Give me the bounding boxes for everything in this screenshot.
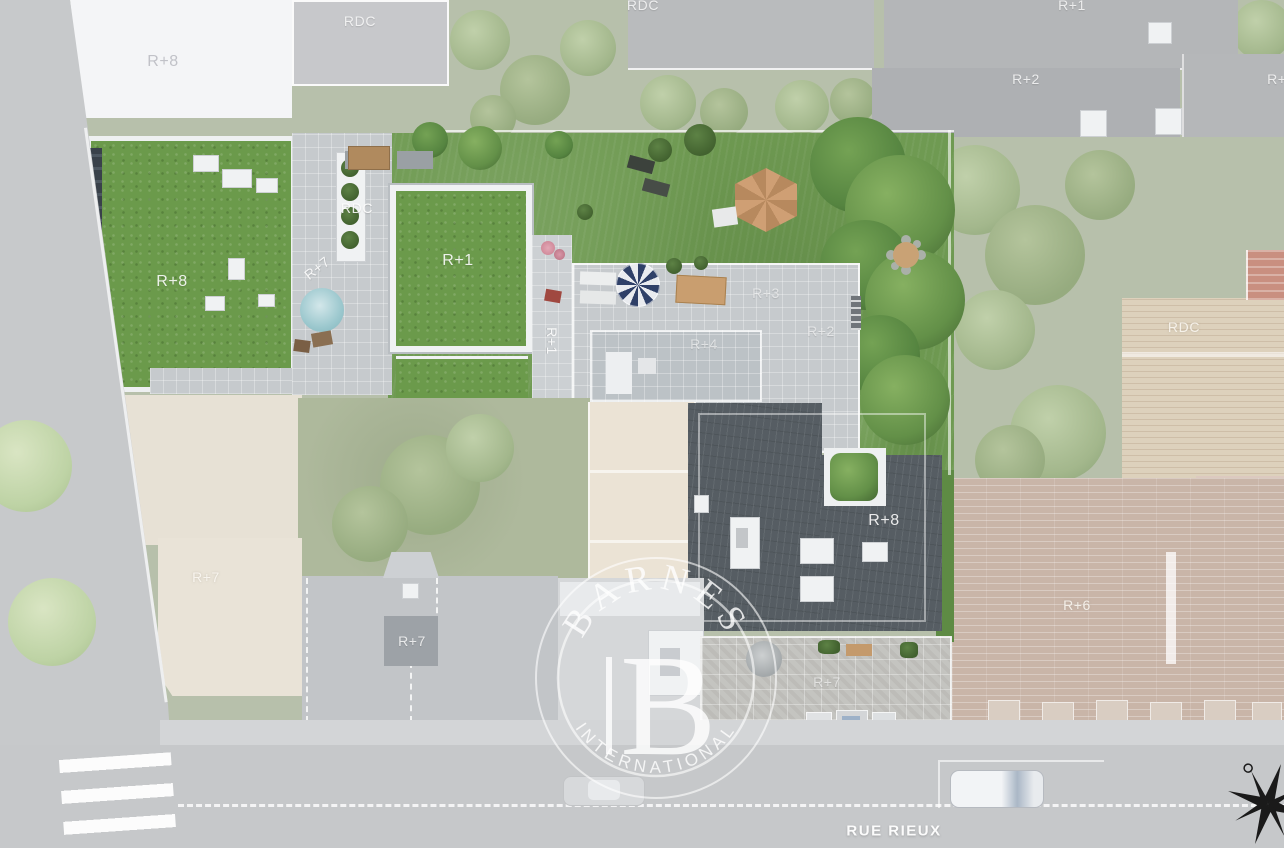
neighbor-wood-deck-rdc: [1122, 298, 1284, 480]
building-label-project-r8-dark: R+8: [868, 512, 900, 530]
neighbor-building-top-left: [70, 0, 292, 118]
roof-line: [590, 540, 690, 543]
planter: [900, 642, 918, 658]
sun-lounger: [580, 271, 616, 285]
sun-lounger: [580, 290, 616, 304]
tree: [560, 20, 616, 76]
building-label-project-rdc: RDC: [341, 200, 373, 216]
building-label-neighbor-r2: R+2: [1012, 71, 1040, 87]
barnes-watermark: BARNES B INTERNATIONAL: [520, 545, 800, 825]
outdoor-table: [348, 146, 390, 170]
roof-dashed-line: [410, 662, 412, 722]
outdoor-table: [675, 275, 726, 306]
tree: [955, 290, 1035, 370]
rooftop-skylight: [1080, 110, 1107, 137]
roof-line: [590, 470, 690, 473]
parked-car: [950, 770, 1044, 808]
rooftop-unit: [222, 169, 252, 188]
roof-furniture: [606, 352, 632, 394]
rooftop-skylight: [1148, 22, 1172, 44]
skylight: [402, 583, 419, 599]
crosswalk: [59, 752, 177, 848]
garden-dining-table: [893, 242, 919, 268]
building-label-project-r4: R+4: [690, 336, 718, 352]
outdoor-seat: [293, 339, 311, 353]
tree: [1065, 150, 1135, 220]
rooftop-unit: [228, 258, 245, 280]
building-label-project-r1-strip: R+1: [544, 327, 560, 355]
planter-shrub: [341, 231, 359, 249]
skylight: [800, 576, 834, 602]
street-name-label: RUE RIEUX: [846, 823, 941, 840]
building-label-neighbor-r1: R+1: [1058, 0, 1086, 13]
shrub: [684, 124, 716, 156]
building-label-neighbor-r6: R+6: [1063, 597, 1091, 613]
outdoor-chair: [544, 289, 562, 304]
picnic-blanket: [712, 206, 738, 227]
flower-pot: [554, 249, 565, 260]
neighbor-building-top-center: [628, 0, 874, 70]
penthouse-cap: [383, 552, 439, 578]
site-plan-canvas: R+8 RDC RDC R+1 R+2 R+2 R+8 RDC R+7 R+1 …: [0, 0, 1284, 848]
compass-rose-icon: [1216, 758, 1284, 848]
building-label-project-r2: R+2: [807, 323, 835, 339]
building-label-neighbor-r8: R+8: [147, 53, 179, 71]
neighbor-building-far-right: [1182, 54, 1284, 137]
walkway: [150, 368, 296, 394]
teal-parasol: [300, 288, 344, 332]
planter-shrub: [694, 256, 708, 270]
tree: [775, 80, 829, 134]
striped-parasol: [616, 263, 660, 307]
building-label-neighbor-rdc-deck: RDC: [1168, 319, 1200, 335]
rooftop-skylight: [1155, 108, 1182, 135]
street-tree: [8, 578, 96, 666]
shrub: [412, 122, 448, 158]
roof-planter-shrubs: [830, 453, 878, 501]
skylight: [862, 542, 888, 562]
rooftop-unit: [258, 294, 275, 307]
rooftop-unit: [193, 155, 219, 172]
shrub: [545, 131, 573, 159]
building-label-project-r1-green: R+1: [442, 252, 474, 270]
shrub: [577, 204, 593, 220]
brick-roof-joint: [1166, 552, 1176, 664]
skylight: [800, 538, 834, 564]
neighbor-building-r7-cream: [158, 538, 302, 696]
rooftop-unit: [256, 178, 278, 193]
shrub: [648, 138, 672, 162]
roof-dashed-line: [306, 578, 308, 722]
tree: [446, 414, 514, 482]
building-label-neighbor-r7-cream: R+7: [192, 569, 220, 585]
building-label-neighbor-rdc-center: RDC: [627, 0, 659, 13]
building-label-neighbor-r2-clipped: R+2: [1267, 71, 1284, 87]
deck-walk-line: [1122, 352, 1284, 357]
roof-furniture: [638, 358, 656, 374]
rooftop-unit: [205, 296, 225, 311]
flower-pot: [541, 241, 555, 255]
neighbor-brick-building-r6: [952, 478, 1284, 724]
shrub: [458, 126, 502, 170]
watermark-monogram-bar: [606, 657, 612, 754]
planter-shrub: [666, 258, 682, 274]
planter: [818, 640, 840, 654]
neighbor-courtyard-beige: [115, 395, 302, 545]
tree: [450, 10, 510, 70]
tree: [640, 75, 696, 131]
building-label-project-r8-green: R+8: [156, 273, 188, 291]
building-label-project-r3: R+3: [752, 285, 780, 301]
building-label-project-r7-building: R+7: [398, 633, 426, 649]
building-label-project-r7-lower: R+7: [813, 674, 841, 690]
neighbor-red-tile-roof: [1246, 250, 1284, 300]
roof-ladder: [851, 296, 861, 330]
tree: [1232, 0, 1284, 60]
rooftop-unit: [694, 495, 709, 513]
planter-shrub: [341, 183, 359, 201]
building-label-neighbor-rdc: RDC: [344, 13, 376, 29]
green-patch: [396, 356, 528, 400]
tree: [332, 486, 408, 562]
outdoor-bench: [846, 644, 872, 656]
paved-strip: [532, 235, 572, 403]
